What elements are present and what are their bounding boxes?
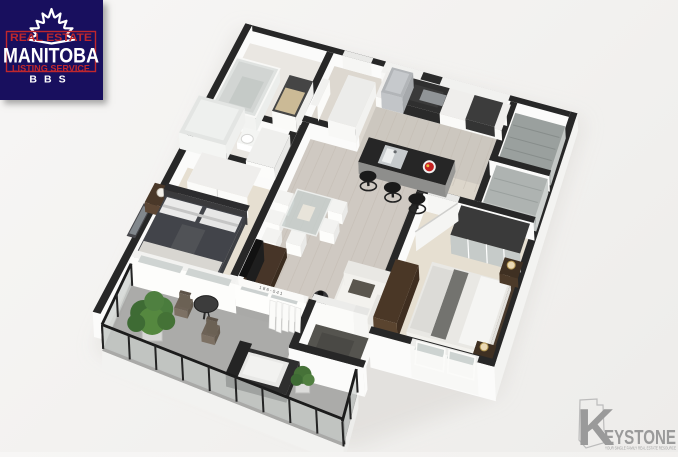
svg-text:YOUR SINGLE FAMILY REAL ESTATE: YOUR SINGLE FAMILY REAL ESTATE RESOURCE [605,446,676,451]
svg-text:REAL ESTATE: REAL ESTATE [10,32,92,44]
svg-text:BBS: BBS [29,74,72,86]
